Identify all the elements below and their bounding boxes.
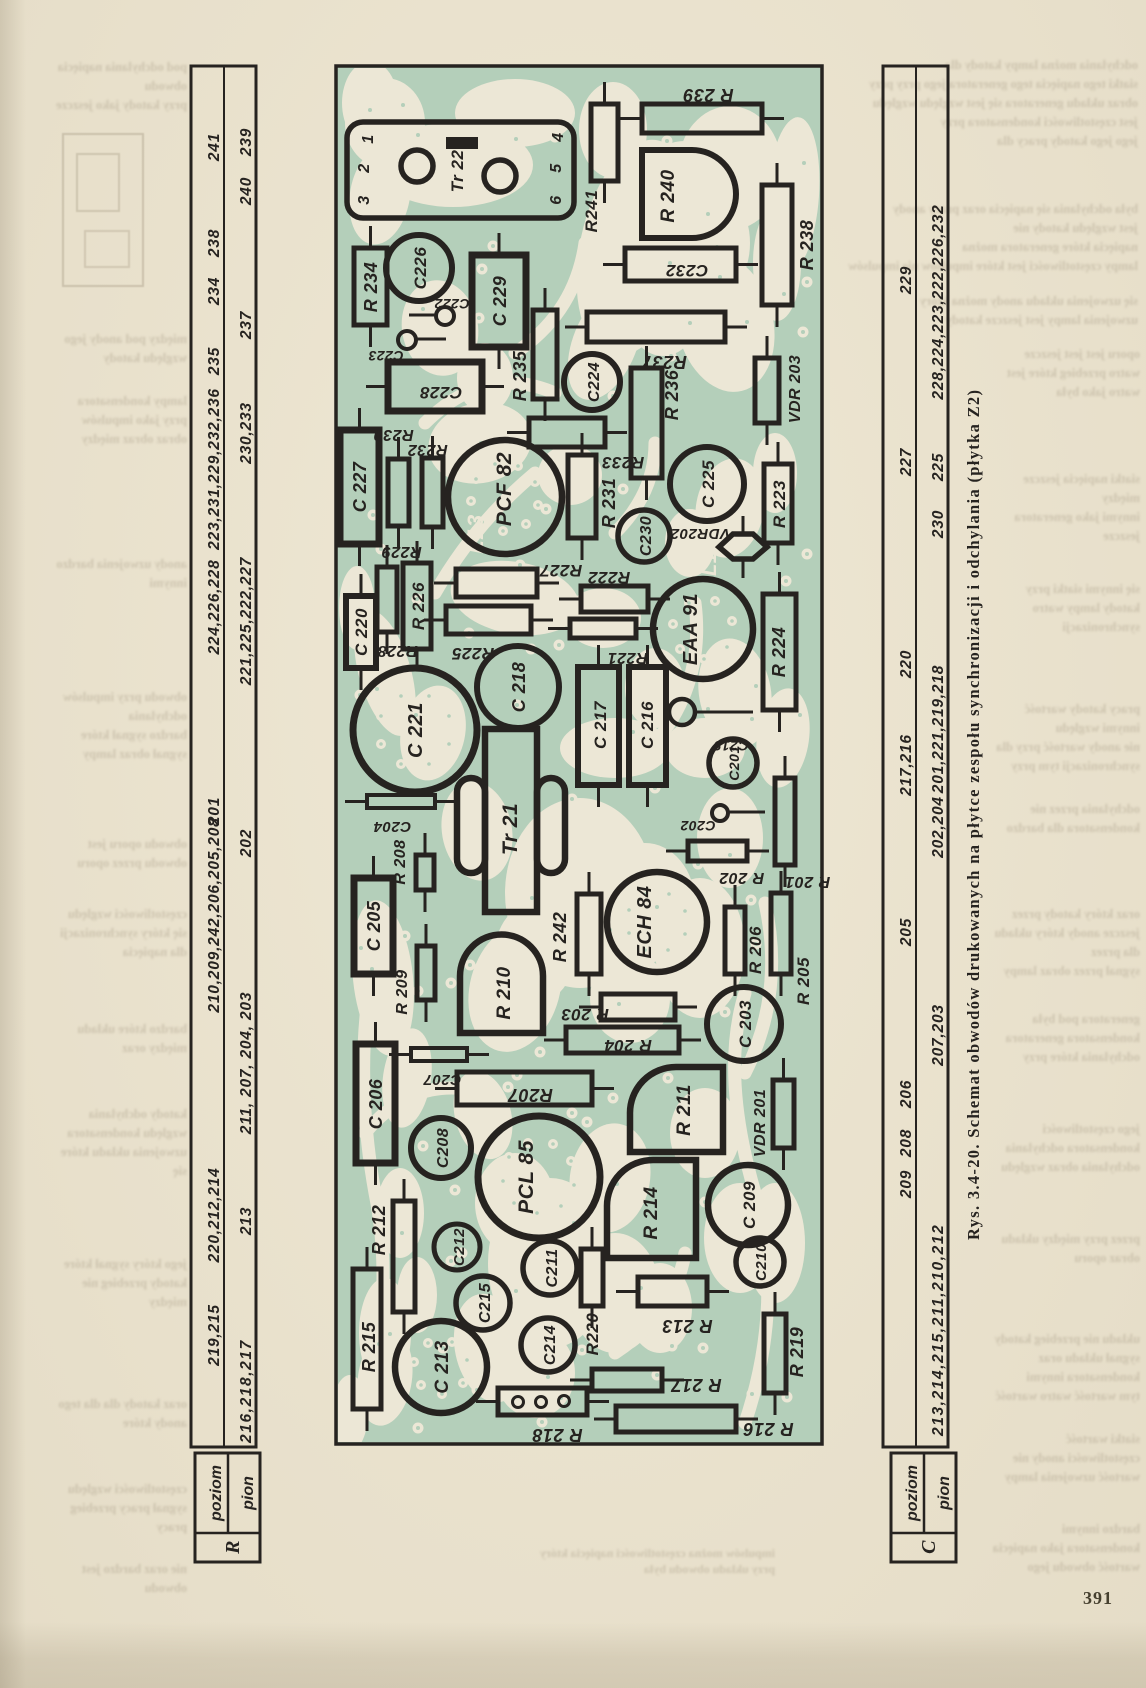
svg-text:213,214,215,211,210,212: 213,214,215,211,210,212 (930, 1224, 947, 1437)
svg-text:R 206: R 206 (746, 926, 765, 974)
svg-text:C230: C230 (638, 516, 655, 556)
svg-text:C 203: C 203 (736, 1000, 755, 1048)
svg-text:C202: C202 (680, 818, 715, 834)
svg-text:202: 202 (238, 829, 255, 858)
svg-text:R233: R233 (602, 453, 645, 472)
svg-text:VDR 201: VDR 201 (752, 1089, 769, 1157)
svg-text:C 225: C 225 (699, 460, 718, 508)
svg-text:216,218,217: 216,218,217 (238, 1339, 255, 1444)
svg-text:R 235: R 235 (510, 350, 530, 401)
svg-text:C211: C211 (544, 1248, 561, 1287)
svg-text:228,224,223,222,226,232: 228,224,223,222,226,232 (930, 204, 947, 400)
svg-text:206: 206 (898, 1080, 915, 1109)
svg-text:220: 220 (898, 650, 915, 679)
svg-text:R 211: R 211 (674, 1084, 695, 1136)
svg-text:230,233: 230,233 (238, 402, 255, 465)
svg-text:R237: R237 (641, 352, 687, 372)
svg-text:R229: R229 (381, 543, 421, 560)
svg-text:234: 234 (206, 277, 223, 306)
svg-text:208: 208 (898, 1129, 915, 1158)
svg-text:R232: R232 (407, 441, 447, 458)
svg-text:C223: C223 (368, 348, 403, 364)
svg-text:205: 205 (898, 918, 915, 947)
svg-text:R207: R207 (507, 1085, 553, 1105)
svg-text:R 224: R 224 (769, 627, 789, 678)
svg-text:R225: R225 (452, 644, 495, 663)
svg-text:poziom: poziom (208, 1465, 225, 1522)
svg-text:201: 201 (206, 797, 223, 826)
svg-text:C208: C208 (435, 1128, 452, 1168)
svg-text:C222: C222 (434, 296, 469, 312)
svg-text:211, 207, 204, 203: 211, 207, 204, 203 (238, 992, 255, 1136)
svg-text:R 218: R 218 (532, 1425, 583, 1445)
svg-text:R 203: R 203 (561, 1005, 609, 1024)
svg-text:C 221: C 221 (405, 702, 427, 758)
svg-text:L10: L10 (683, 961, 708, 1001)
svg-text:227: 227 (898, 447, 915, 477)
svg-text:C212: C212 (451, 1228, 468, 1266)
svg-text:R 223: R 223 (770, 480, 789, 528)
svg-text:C228: C228 (420, 383, 463, 402)
svg-text:213: 213 (238, 1207, 255, 1236)
svg-text:R 236: R 236 (662, 369, 682, 420)
svg-text:207,203: 207,203 (930, 1004, 947, 1067)
svg-text:R: R (222, 1540, 244, 1555)
svg-text:C232: C232 (666, 261, 709, 280)
svg-text:R 208: R 208 (392, 839, 409, 884)
svg-text:C 217: C 217 (591, 700, 610, 749)
svg-text:223,231,229,232,236: 223,231,229,232,236 (206, 388, 223, 551)
svg-text:241: 241 (206, 133, 223, 162)
svg-text:R 239: R 239 (683, 85, 734, 105)
svg-text:221,225,222,227: 221,225,222,227 (238, 556, 255, 686)
svg-text:C204: C204 (373, 818, 411, 835)
svg-text:R221: R221 (607, 649, 647, 666)
svg-text:C219: C219 (713, 738, 748, 754)
svg-text:R 216: R 216 (743, 1419, 794, 1439)
svg-text:poziom: poziom (904, 1465, 921, 1522)
svg-text:Rys. 3.4-20. Schemat obwodów d: Rys. 3.4-20. Schemat obwodów drukowanych… (964, 390, 983, 1240)
svg-text:Tr 22: Tr 22 (448, 150, 467, 193)
svg-text:R 204: R 204 (604, 1036, 652, 1055)
svg-text:R 226: R 226 (409, 582, 428, 630)
svg-text:R 231: R 231 (599, 478, 619, 529)
svg-text:R220: R220 (583, 1313, 602, 1356)
svg-text:239: 239 (238, 128, 255, 157)
svg-text:R227: R227 (539, 561, 583, 580)
svg-text:VDR 203: VDR 203 (787, 355, 804, 423)
svg-text:210,209,242,206,205,208: 210,209,242,206,205,208 (206, 817, 223, 1013)
svg-text:C 205: C 205 (364, 900, 384, 951)
svg-text:C 220: C 220 (352, 608, 371, 656)
svg-text:C: C (918, 1540, 940, 1554)
svg-text:C215: C215 (477, 1282, 494, 1323)
svg-text:pion: pion (240, 1476, 257, 1511)
svg-text:PCF 82: PCF 82 (493, 452, 516, 526)
svg-text:R 240: R 240 (658, 169, 679, 222)
svg-text:235: 235 (206, 347, 223, 376)
svg-text:PCL 85: PCL 85 (515, 1140, 538, 1214)
svg-text:2: 2 (356, 163, 373, 173)
svg-text:C226: C226 (411, 247, 430, 290)
svg-text:237: 237 (238, 310, 255, 340)
svg-text:R 214: R 214 (641, 1186, 662, 1239)
svg-text:238: 238 (206, 229, 223, 258)
svg-text:R 212: R 212 (369, 1205, 389, 1256)
svg-text:4: 4 (550, 132, 567, 142)
svg-text:ECH 84: ECH 84 (634, 885, 656, 958)
svg-text:C 227: C 227 (350, 461, 370, 512)
svg-text:R 234: R 234 (361, 262, 381, 313)
svg-text:230: 230 (930, 510, 947, 539)
svg-text:C 206: C 206 (366, 1078, 386, 1129)
svg-text:Tr 21: Tr 21 (499, 803, 522, 855)
svg-text:R 202: R 202 (719, 869, 764, 886)
svg-text:EAA 91: EAA 91 (680, 593, 702, 665)
svg-text:C 216: C 216 (638, 701, 657, 749)
svg-text:R 213: R 213 (662, 1316, 713, 1336)
svg-text:C214: C214 (542, 1325, 559, 1365)
svg-text:R 217: R 217 (671, 1375, 722, 1395)
svg-text:5: 5 (548, 163, 565, 173)
svg-text:225: 225 (930, 453, 947, 482)
svg-text:R 210: R 210 (494, 966, 515, 1019)
svg-text:202,204: 202,204 (930, 796, 947, 859)
svg-text:1: 1 (360, 134, 377, 143)
svg-text:R241: R241 (582, 190, 601, 233)
svg-text:219,215: 219,215 (206, 1304, 223, 1367)
svg-text:C 213: C 213 (432, 1340, 453, 1393)
svg-text:R230: R230 (373, 426, 413, 443)
svg-text:R 242: R 242 (550, 912, 570, 963)
svg-text:VDR202: VDR202 (670, 525, 730, 542)
svg-text:R 215: R 215 (359, 1321, 379, 1372)
svg-text:R222: R222 (588, 568, 631, 587)
svg-text:209: 209 (898, 1170, 915, 1199)
svg-text:C 218: C 218 (509, 662, 529, 713)
svg-text:R 219: R 219 (787, 1327, 807, 1378)
svg-text:224,226,228: 224,226,228 (206, 560, 223, 656)
svg-text:C 229: C 229 (490, 276, 510, 327)
svg-text:R 238: R 238 (797, 220, 817, 271)
svg-text:R 205: R 205 (794, 957, 813, 1005)
svg-text:240: 240 (238, 177, 255, 206)
svg-text:C224: C224 (586, 362, 603, 402)
svg-text:217,216: 217,216 (898, 734, 915, 797)
svg-text:pion: pion (936, 1476, 953, 1511)
svg-text:220,212,214: 220,212,214 (206, 1168, 223, 1264)
svg-text:R 201: R 201 (785, 873, 830, 890)
svg-text:C210: C210 (753, 1243, 770, 1281)
svg-text:R 209: R 209 (394, 969, 411, 1014)
svg-text:229: 229 (898, 266, 915, 295)
svg-text:C 209: C 209 (740, 1181, 759, 1229)
svg-text:201,221,219,218: 201,221,219,218 (930, 665, 947, 794)
svg-text:6: 6 (548, 195, 565, 204)
svg-text:3: 3 (356, 195, 373, 204)
